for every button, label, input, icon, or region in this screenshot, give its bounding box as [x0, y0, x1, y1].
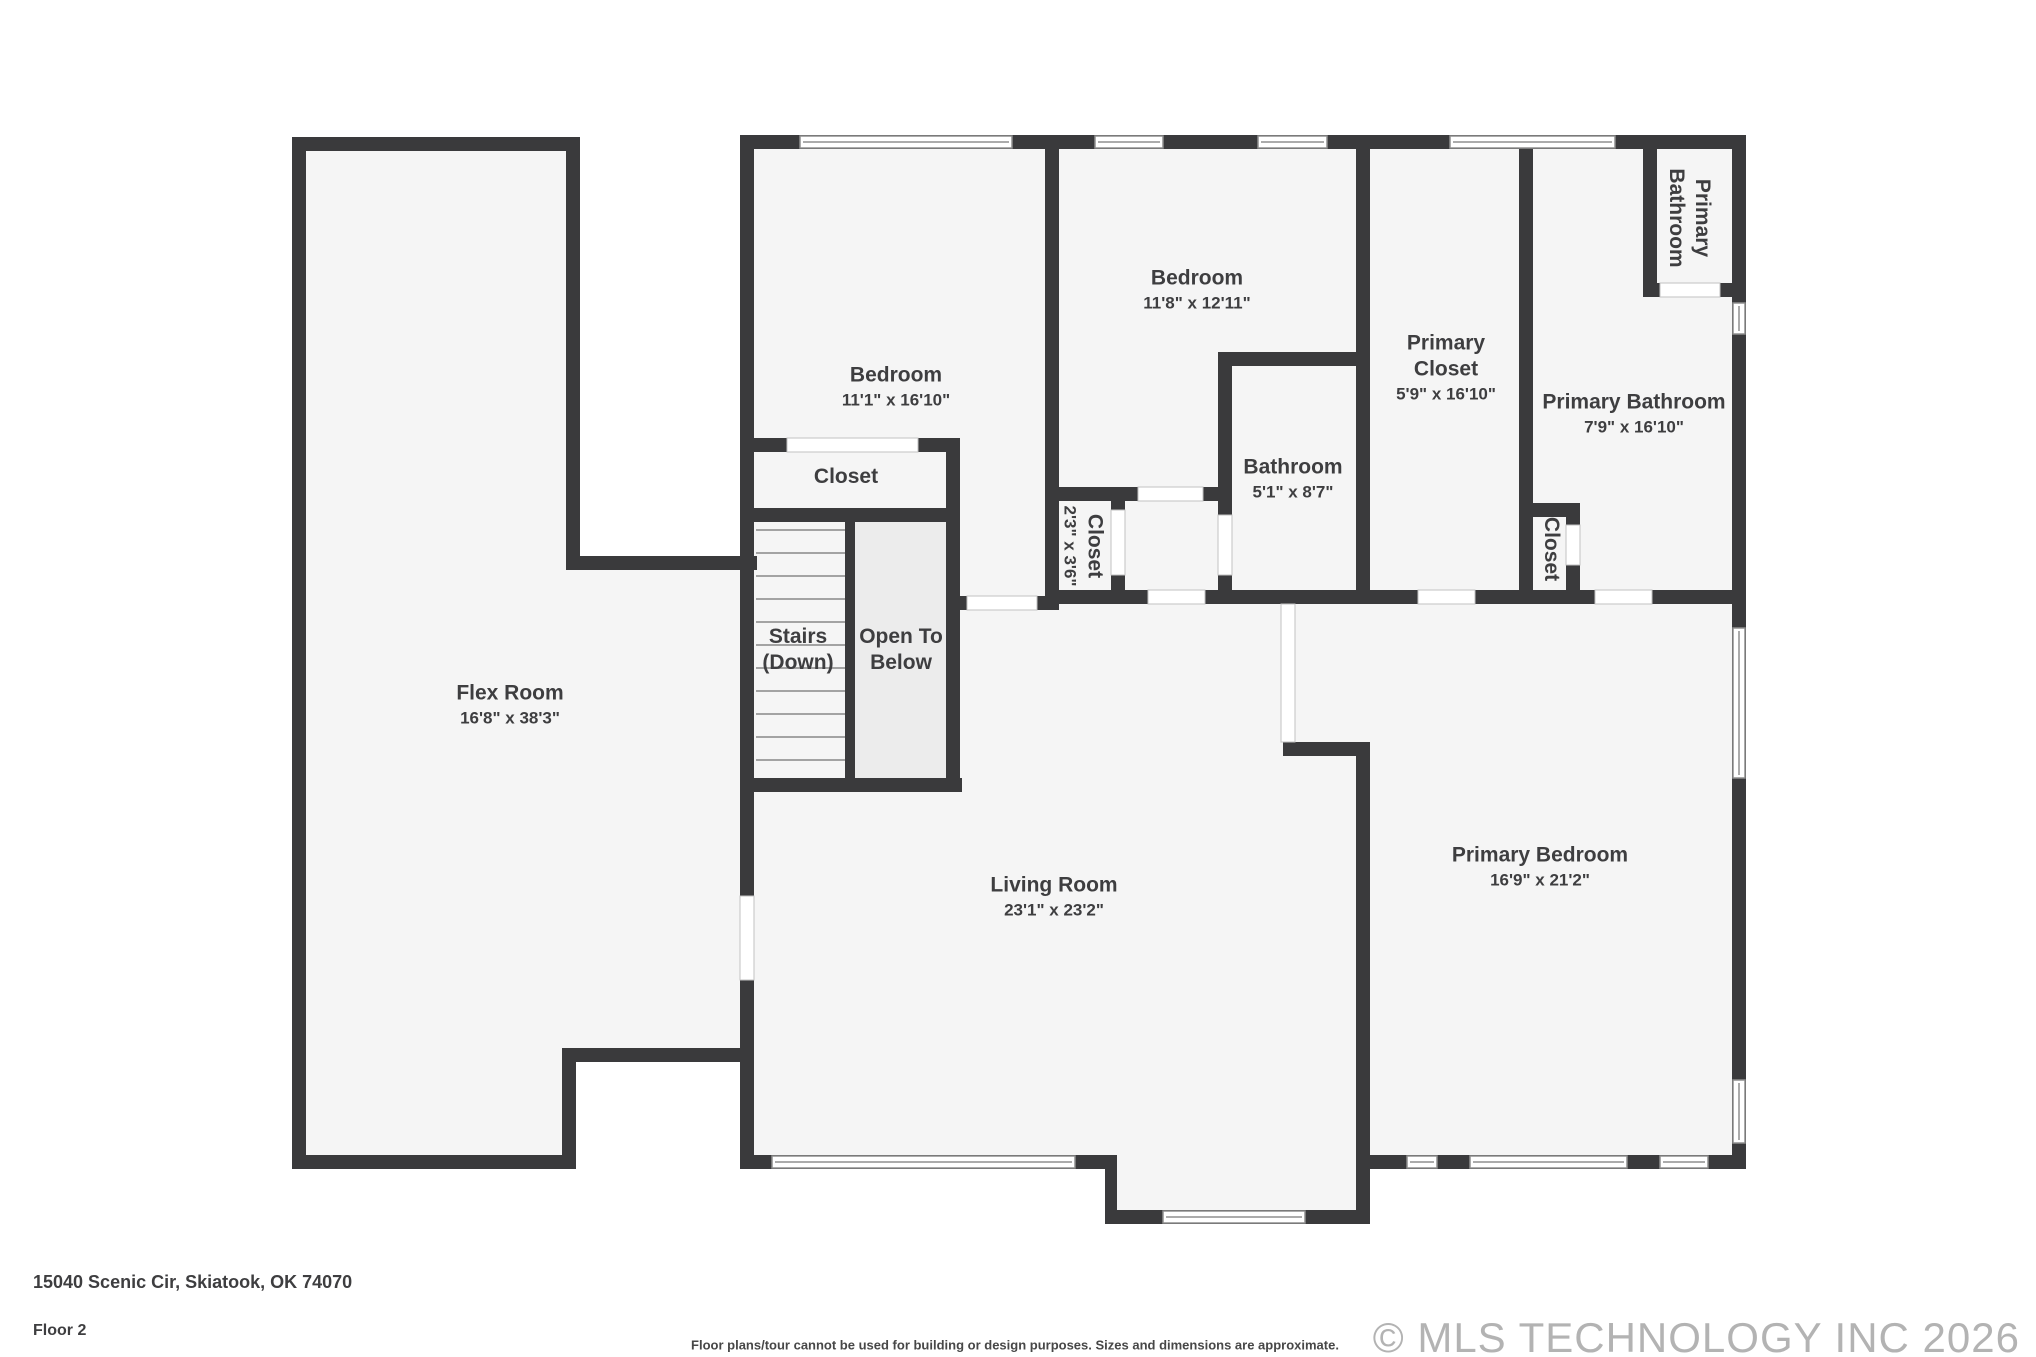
room-label-bedroom-1: Bedroom 11'1" x 16'10": [842, 363, 950, 412]
room-label-primary-bath-closet: Closet: [1538, 517, 1564, 581]
room-label-bathroom: Bathroom 5'1" x 8'7": [1243, 455, 1342, 504]
floor-plan-drawing: [0, 0, 2036, 1357]
room-label-bedroom-2: Bedroom 11'8" x 12'11": [1143, 266, 1250, 315]
room-label-primary-bedroom: Primary Bedroom 16'9" x 21'2": [1452, 843, 1628, 892]
floor-plan-page: Flex Room 16'8" x 38'3" Bedroom 11'1" x …: [0, 0, 2036, 1357]
room-label-primary-closet: Primary Closet 5'9" x 16'10": [1396, 331, 1496, 406]
copyright-text: © MLS TECHNOLOGY INC 2026: [1373, 1314, 2020, 1357]
room-label-flex-room: Flex Room 16'8" x 38'3": [456, 681, 563, 730]
room-label-primary-bathroom: Primary Bathroom 7'9" x 16'10": [1542, 390, 1725, 439]
room-label-living-room: Living Room 23'1" x 23'2": [990, 873, 1117, 922]
room-label-hall-closet: Closet 2'3" x 3'6": [1059, 506, 1108, 587]
address-text: 15040 Scenic Cir, Skiatook, OK 74070: [33, 1272, 352, 1293]
room-label-primary-wc: Primary Bathroom: [1663, 168, 1715, 267]
room-label-bedroom-closet: Closet: [814, 464, 878, 490]
flex-room-floor: [299, 144, 749, 1162]
disclaimer-text: Floor plans/tour cannot be used for buil…: [691, 1338, 1339, 1353]
room-label-open-to-below: Open To Below: [859, 624, 943, 676]
floor-number-text: Floor 2: [33, 1322, 86, 1340]
room-label-stairs: Stairs (Down): [762, 624, 833, 676]
